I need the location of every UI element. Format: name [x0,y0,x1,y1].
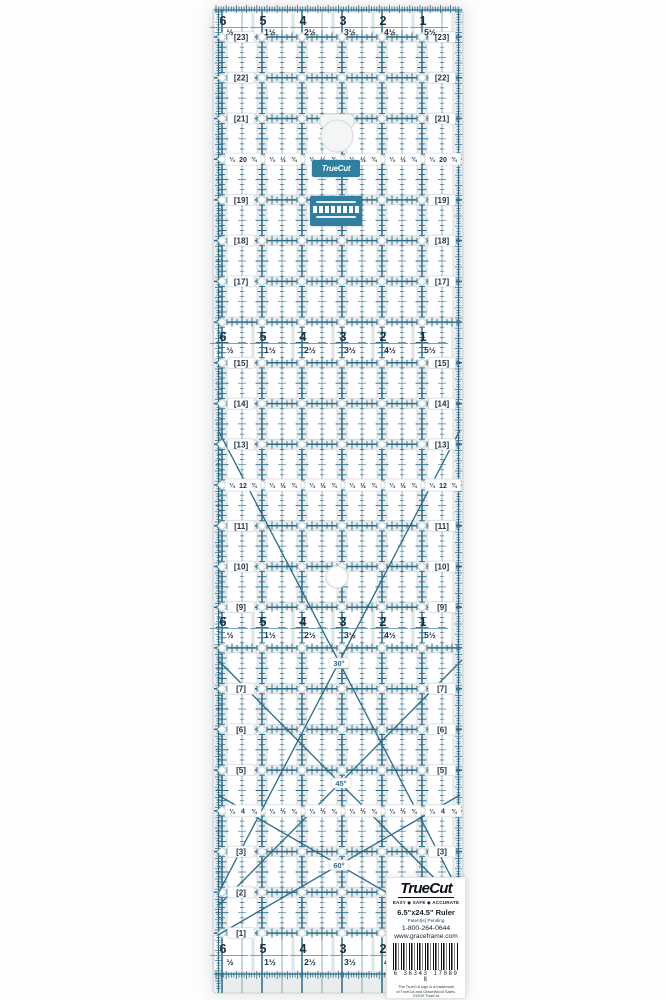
mini-barcode-blocks [310,206,362,213]
svg-text:4½: 4½ [384,345,396,355]
svg-text:[6]: [6] [236,725,246,734]
trademark-text: The TrueCut logo is a trademark of TrueC… [389,985,463,999]
svg-text:¾: ¾ [371,808,377,815]
svg-text:2½: 2½ [304,345,316,355]
svg-text:[21]: [21] [234,115,249,124]
svg-text:60°: 60° [333,861,344,870]
svg-text:1½: 1½ [264,345,276,355]
svg-text:4: 4 [300,942,307,956]
svg-text:¾: ¾ [451,808,457,815]
mini-brand-text: TrueCut [322,164,350,173]
mini-sticker-line [316,201,356,203]
svg-text:[17]: [17] [435,277,450,286]
svg-text:6: 6 [220,14,227,28]
quilting-ruler: [23] [23] [22] [22] [21] [21] ¼ 20 ¾ ¼ ½… [0,0,666,1000]
svg-text:3½: 3½ [344,957,356,967]
svg-text:½: ½ [320,808,326,816]
svg-text:¼: ¼ [429,808,435,815]
svg-text:¼: ¼ [349,808,355,815]
svg-text:[14]: [14] [234,400,249,409]
svg-text:4: 4 [300,330,307,344]
svg-text:¾: ¾ [331,483,337,490]
svg-text:[5]: [5] [236,766,246,775]
svg-text:¾: ¾ [371,157,377,164]
svg-text:[10]: [10] [435,563,450,572]
svg-text:[18]: [18] [435,237,450,246]
svg-text:[1]: [1] [236,929,246,938]
svg-text:¾: ¾ [411,157,417,164]
svg-text:¾: ¾ [251,157,257,164]
svg-text:[9]: [9] [437,603,447,612]
svg-text:¾: ¾ [251,483,257,490]
svg-text:3: 3 [340,330,347,344]
svg-text:5: 5 [260,14,267,28]
svg-text:3½: 3½ [344,630,356,640]
svg-text:1½: 1½ [264,27,276,37]
svg-text:¼: ¼ [229,808,235,815]
svg-text:3: 3 [340,615,347,629]
svg-text:¼: ¼ [429,157,435,164]
svg-text:[6]: [6] [437,725,447,734]
svg-text:1½: 1½ [264,630,276,640]
svg-text:2: 2 [380,14,387,28]
svg-text:4½: 4½ [384,27,396,37]
website-url: www.graceframe.com [389,933,463,940]
svg-text:6: 6 [220,942,227,956]
brand-tagline: EASY ◆ SAFE ◆ ACCURATE [389,900,463,906]
svg-text:½: ½ [226,345,233,355]
svg-text:¼: ¼ [309,483,315,490]
svg-text:¼: ¼ [269,808,275,815]
svg-text:½: ½ [280,808,286,816]
svg-text:[17]: [17] [234,277,249,286]
svg-text:[23]: [23] [234,33,249,42]
svg-text:6: 6 [220,330,227,344]
mini-brand-sticker: TrueCut [312,160,360,177]
svg-text:[3]: [3] [236,848,246,857]
svg-text:1½: 1½ [264,957,276,967]
svg-text:12: 12 [439,483,447,490]
svg-text:¼: ¼ [309,808,315,815]
svg-text:¾: ¾ [291,808,297,815]
svg-text:¼: ¼ [389,157,395,164]
svg-text:[15]: [15] [435,359,450,368]
svg-text:½: ½ [360,156,366,164]
svg-text:¾: ¾ [451,157,457,164]
svg-text:¾: ¾ [411,483,417,490]
svg-text:¼: ¼ [429,483,435,490]
svg-text:5½: 5½ [424,630,436,640]
svg-text:2: 2 [380,330,387,344]
svg-text:[10]: [10] [234,563,249,572]
svg-text:2½: 2½ [304,630,316,640]
svg-text:½: ½ [400,482,406,490]
svg-text:[22]: [22] [435,74,450,83]
svg-text:¼: ¼ [389,483,395,490]
phone-number: 1-800-264-0644 [389,925,463,932]
svg-text:[2]: [2] [236,888,246,897]
svg-text:45°: 45° [335,779,346,788]
svg-text:[13]: [13] [234,440,249,449]
svg-text:[19]: [19] [234,196,249,205]
mini-barcode-sticker [310,196,362,226]
svg-text:1: 1 [420,330,427,344]
hang-hole [320,114,354,152]
svg-text:30°: 30° [333,659,344,668]
product-photo: [23] [23] [22] [22] [21] [21] ¼ 20 ¾ ¼ ½… [0,0,666,1000]
svg-text:1: 1 [420,14,427,28]
svg-text:[15]: [15] [234,359,249,368]
svg-text:4: 4 [300,14,307,28]
svg-text:¼: ¼ [349,483,355,490]
svg-text:½: ½ [400,808,406,816]
svg-text:[18]: [18] [234,237,249,246]
brand-logo: TrueCut [398,881,454,898]
barcode [393,943,459,970]
svg-text:¾: ¾ [291,483,297,490]
svg-text:5: 5 [260,942,267,956]
svg-text:5: 5 [260,330,267,344]
svg-text:3½: 3½ [344,27,356,37]
svg-text:½: ½ [360,482,366,490]
barcode-number: 6 36343 17089 8 [389,971,463,983]
svg-text:½: ½ [280,482,286,490]
copyright-text: ©2010 TrueCut [413,993,439,998]
svg-text:[3]: [3] [437,848,447,857]
svg-text:2: 2 [380,615,387,629]
svg-text:¾: ¾ [291,157,297,164]
svg-text:¾: ¾ [451,483,457,490]
svg-text:3: 3 [340,14,347,28]
svg-text:¾: ¾ [411,808,417,815]
svg-text:4: 4 [441,809,445,816]
svg-text:¼: ¼ [389,808,395,815]
svg-text:2½: 2½ [304,27,316,37]
svg-text:5½: 5½ [424,345,436,355]
svg-text:[13]: [13] [435,440,450,449]
svg-text:[11]: [11] [435,522,449,531]
svg-text:½: ½ [360,808,366,816]
svg-text:4: 4 [241,809,245,816]
ruler-size-text: 6.5"x24.5" Ruler [389,908,463,917]
svg-text:¼: ¼ [269,157,275,164]
svg-text:3½: 3½ [344,345,356,355]
svg-text:[9]: [9] [236,603,246,612]
svg-text:2½: 2½ [304,957,316,967]
svg-text:¾: ¾ [371,483,377,490]
svg-text:½: ½ [226,957,233,967]
svg-text:½: ½ [226,27,233,37]
svg-text:[7]: [7] [437,685,447,694]
patent-text: Patent(s) Pending [389,918,463,923]
svg-text:¼: ¼ [229,157,235,164]
mini-sticker-line [316,216,356,218]
svg-text:4: 4 [300,615,307,629]
svg-text:[23]: [23] [435,33,450,42]
svg-text:¼: ¼ [269,483,275,490]
svg-text:¾: ¾ [251,808,257,815]
round-hole [326,566,348,588]
svg-text:½: ½ [280,156,286,164]
svg-text:12: 12 [239,483,247,490]
svg-text:[14]: [14] [435,400,450,409]
svg-text:[22]: [22] [234,74,249,83]
svg-text:[19]: [19] [435,196,450,205]
svg-text:[7]: [7] [236,685,246,694]
svg-text:6: 6 [220,615,227,629]
svg-text:½: ½ [320,482,326,490]
svg-text:[21]: [21] [435,115,450,124]
svg-text:5: 5 [260,615,267,629]
svg-text:5½: 5½ [424,27,436,37]
svg-text:[5]: [5] [437,766,447,775]
svg-text:3: 3 [340,942,347,956]
svg-text:1: 1 [420,615,427,629]
svg-text:¾: ¾ [331,808,337,815]
svg-text:20: 20 [439,157,447,164]
svg-text:[11]: [11] [234,522,248,531]
svg-text:4½: 4½ [384,630,396,640]
svg-text:¼: ¼ [229,483,235,490]
svg-text:½: ½ [226,630,233,640]
product-label: TrueCut EASY ◆ SAFE ◆ ACCURATE 6.5"x24.5… [386,877,466,999]
svg-text:½: ½ [400,156,406,164]
svg-text:20: 20 [239,157,247,164]
